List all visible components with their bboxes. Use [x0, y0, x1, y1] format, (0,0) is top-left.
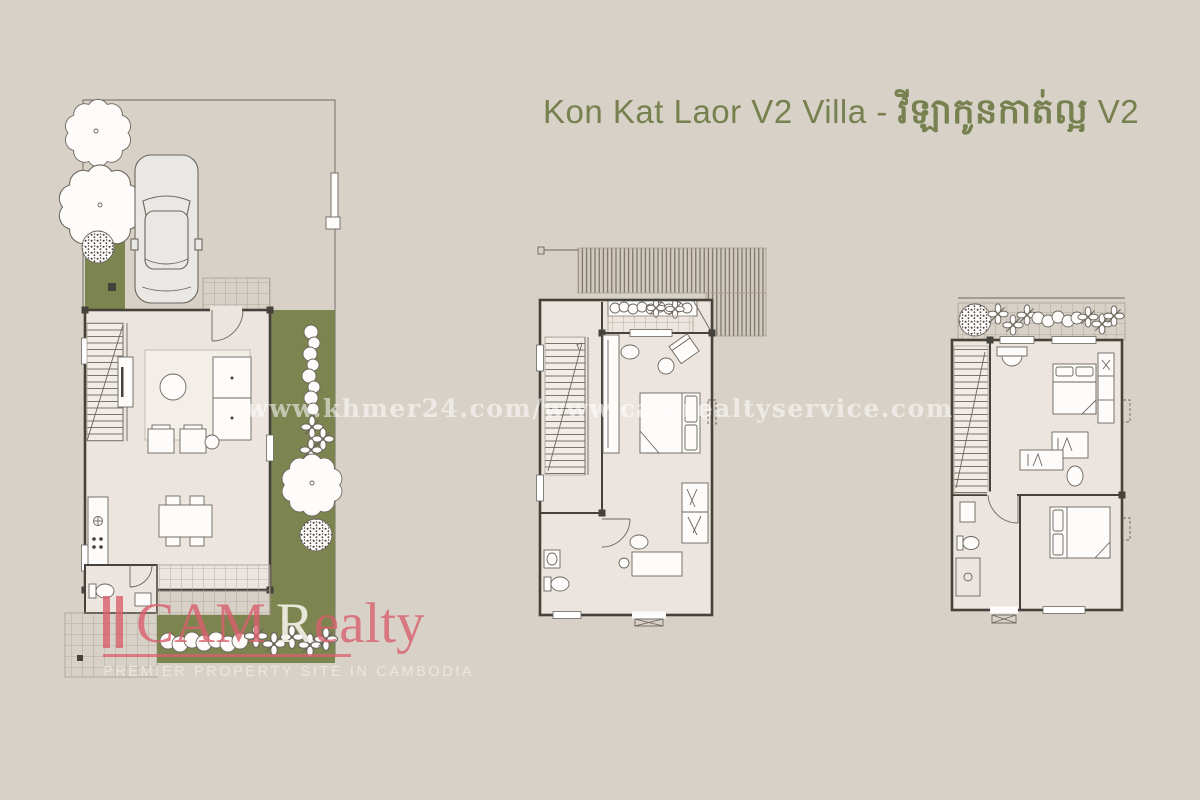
camrealty-logo: CAM R ealty PREMIER PROPERTY SITE IN CAM… — [103, 596, 474, 680]
logo-text-r: R — [276, 597, 314, 651]
porch-tiles — [203, 278, 270, 310]
title-suffix: V2 — [1088, 93, 1139, 130]
first-floor-plan — [535, 245, 775, 640]
title-khmer: វីឡាកូនកាត់ល្អ — [897, 92, 1088, 131]
right-garden — [270, 310, 342, 625]
left-garden — [59, 99, 140, 313]
second-floor-plan — [940, 290, 1140, 635]
staircase — [954, 346, 988, 494]
logo-tagline: PREMIER PROPERTY SITE IN CAMBODIA — [103, 664, 474, 680]
wardrobe — [682, 483, 708, 543]
roof-planter — [958, 298, 1125, 340]
bedroom-2 — [1050, 507, 1110, 558]
floorplan-image: Kon Kat Laor V2 Villa - វីឡាកូនកាត់ល្អ V… — [0, 0, 1200, 800]
page-title: Kon Kat Laor V2 Villa - វីឡាកូនកាត់ល្អ V… — [543, 90, 1139, 141]
logo-text-ealty: ealty — [314, 597, 425, 651]
logo-text-cam: CAM — [136, 597, 266, 651]
logo-bars-icon — [103, 596, 123, 648]
watermark-text: www.khmer24.com/www.camrealtyservice.com — [246, 394, 954, 423]
title-latin: Kon Kat Laor V2 Villa - — [543, 93, 897, 130]
logo-underline — [103, 654, 351, 657]
kitchen — [88, 497, 108, 565]
car — [131, 155, 202, 303]
